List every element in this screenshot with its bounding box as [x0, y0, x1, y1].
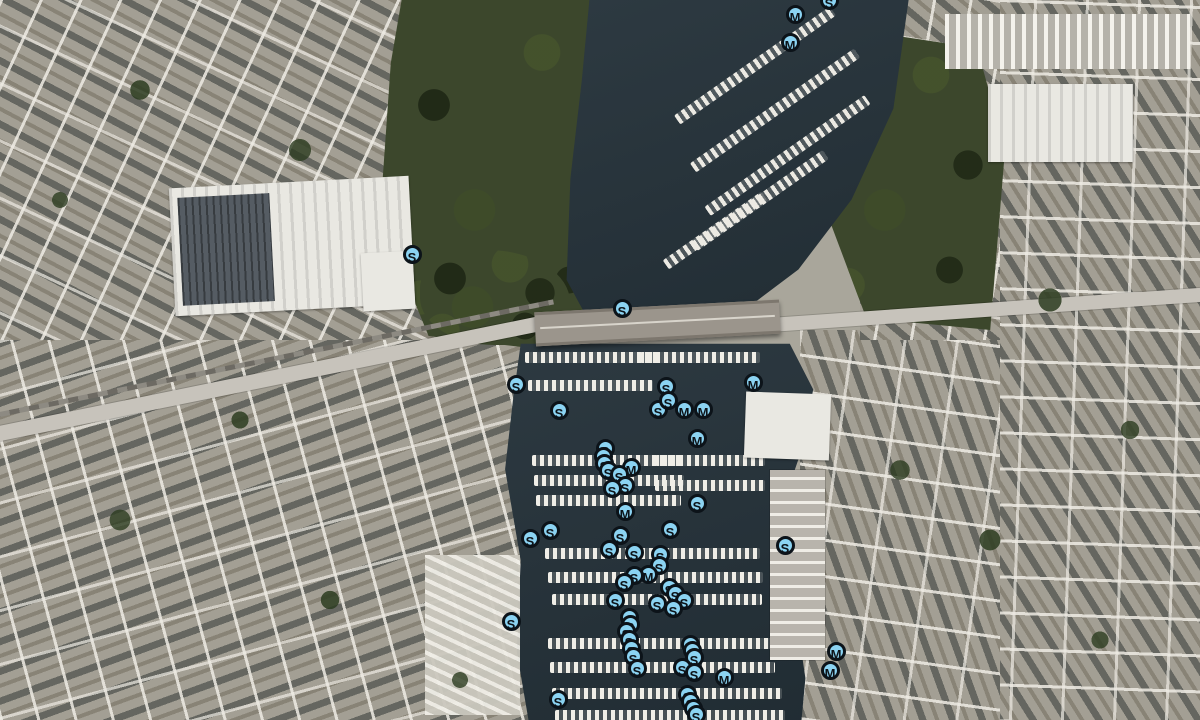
map-marker-m[interactable]: M — [694, 400, 713, 419]
map-marker-s[interactable]: S — [820, 0, 839, 10]
map-marker-s[interactable]: S — [600, 540, 619, 559]
map-marker-m[interactable]: M — [675, 400, 694, 419]
map-marker-s[interactable]: S — [507, 375, 526, 394]
map-marker-s[interactable]: S — [403, 245, 422, 264]
map-marker-s[interactable]: S — [615, 573, 634, 592]
map-marker-s[interactable]: S — [625, 543, 644, 562]
map-marker-m[interactable]: M — [688, 429, 707, 448]
map-marker-s[interactable]: S — [685, 663, 704, 682]
map-marker-s[interactable]: S — [776, 536, 795, 555]
map-marker-s[interactable]: S — [664, 599, 683, 618]
map-marker-m[interactable]: M — [715, 668, 734, 687]
map-marker-m[interactable]: M — [827, 642, 846, 661]
map-marker-m[interactable]: M — [781, 33, 800, 52]
map-marker-s[interactable]: S — [541, 521, 560, 540]
map-canvas[interactable]: SMMSSSSMSSSMMMSSSSMSSSMSSSSSSSSSSMSSSSSS… — [0, 0, 1200, 720]
map-marker-s[interactable]: S — [603, 479, 622, 498]
map-marker-m[interactable]: M — [786, 5, 805, 24]
marker-layer: SMMSSSSMSSSMMMSSSSMSSSMSSSSSSSSSSMSSSSSS… — [0, 0, 1200, 720]
map-marker-s[interactable]: S — [550, 401, 569, 420]
map-marker-m[interactable]: M — [744, 373, 763, 392]
map-marker-s[interactable]: S — [628, 659, 647, 678]
map-marker-s[interactable]: S — [661, 520, 680, 539]
map-marker-s[interactable]: S — [502, 612, 521, 631]
map-marker-s[interactable]: S — [606, 591, 625, 610]
map-marker-m[interactable]: M — [821, 661, 840, 680]
map-marker-s[interactable]: S — [521, 529, 540, 548]
map-marker-s[interactable]: S — [549, 690, 568, 709]
map-marker-s[interactable]: S — [688, 494, 707, 513]
map-marker-s[interactable]: S — [613, 299, 632, 318]
map-marker-m[interactable]: M — [616, 502, 635, 521]
map-marker-s[interactable]: S — [687, 705, 706, 720]
